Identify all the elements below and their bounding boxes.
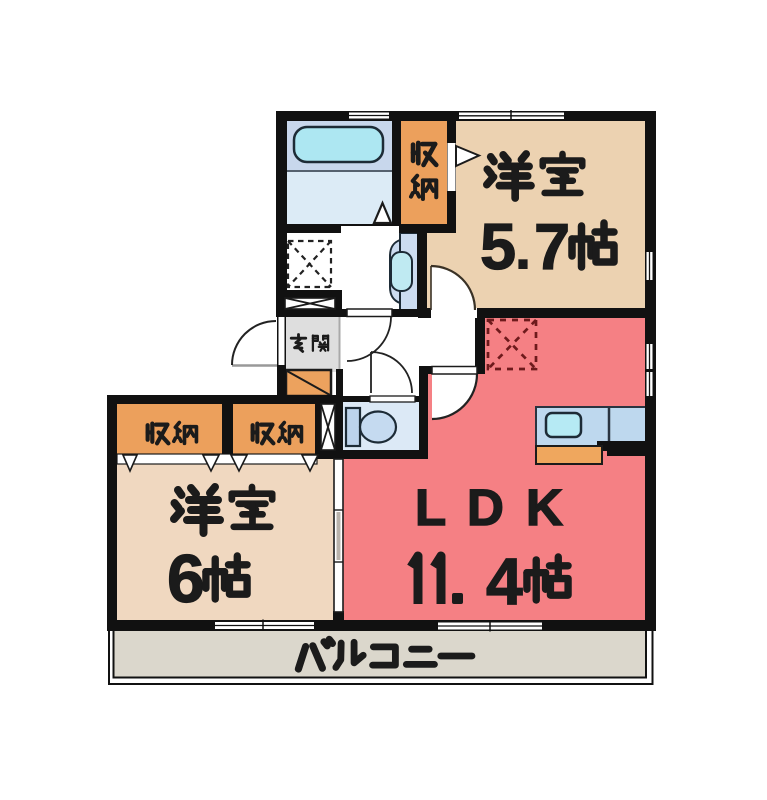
svg-text:5: 5	[480, 210, 516, 283]
svg-text:K: K	[526, 479, 563, 536]
svg-text:.: .	[514, 210, 532, 283]
svg-text:D: D	[467, 479, 504, 536]
svg-text:4: 4	[486, 544, 523, 618]
svg-text:L: L	[415, 479, 446, 536]
svg-text:6: 6	[167, 541, 205, 617]
svg-text:7: 7	[534, 210, 570, 283]
